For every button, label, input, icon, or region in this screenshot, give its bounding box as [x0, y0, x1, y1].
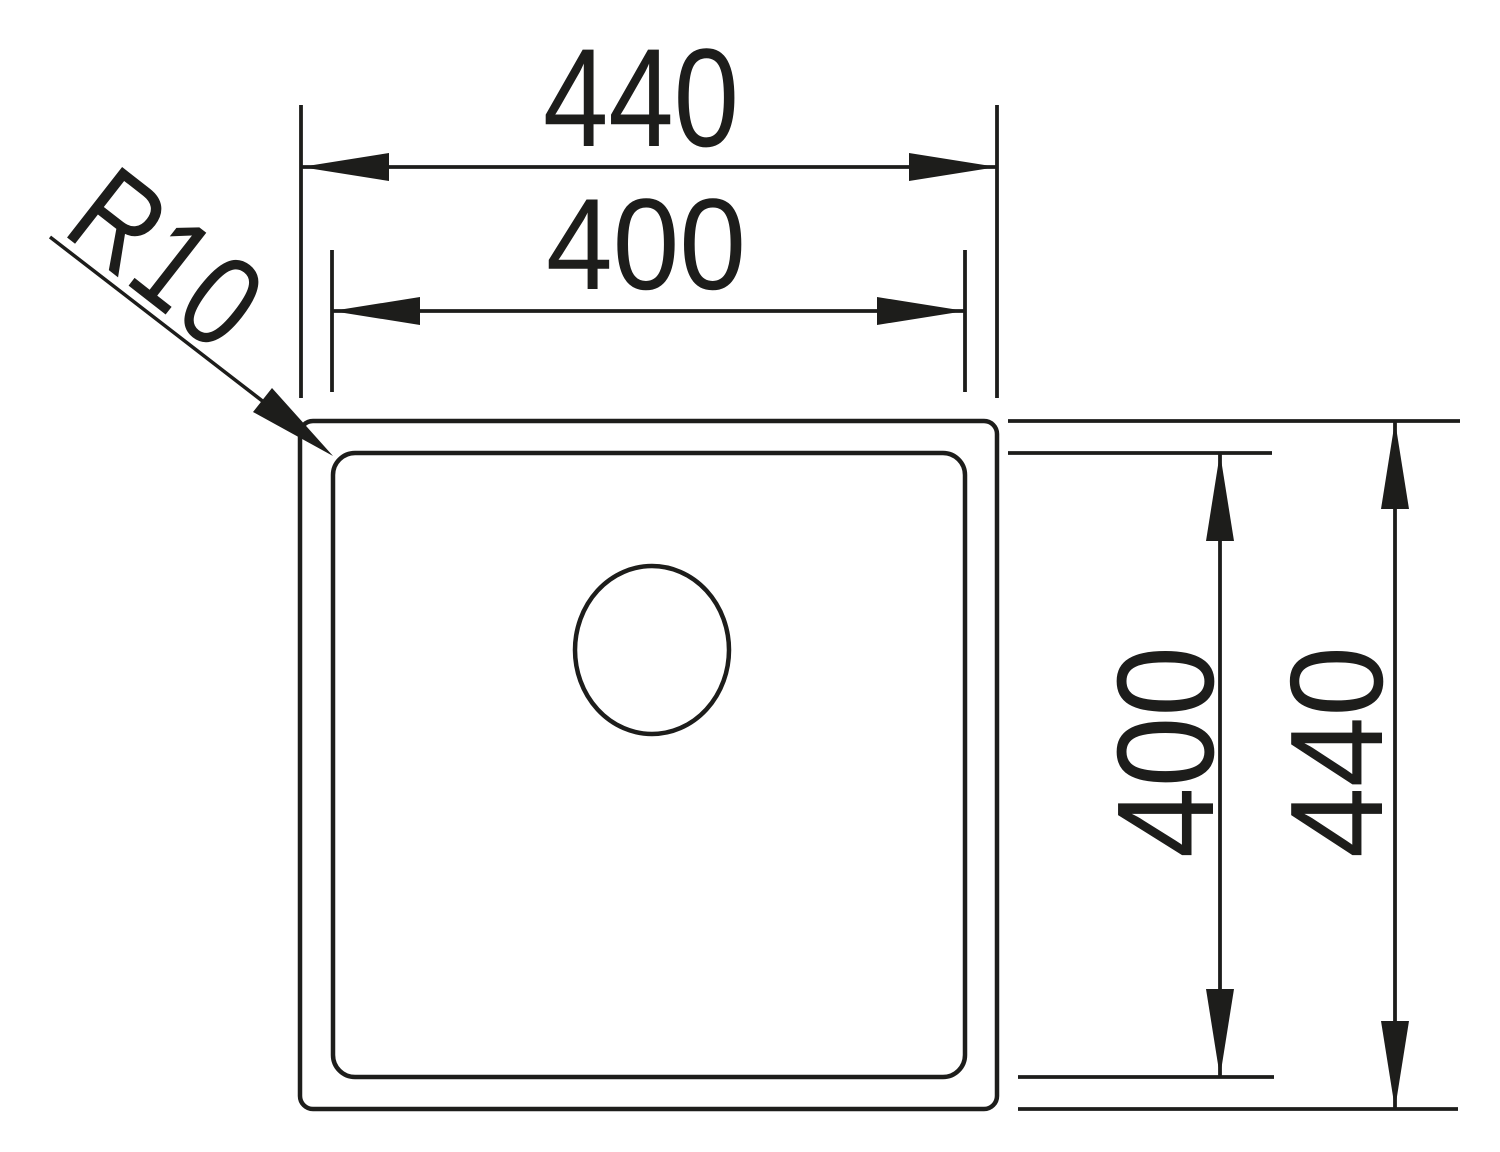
arrowhead-up-icon: [1206, 453, 1234, 541]
drain-hole: [575, 566, 729, 734]
sink-dimension-drawing: 440 400 400 440: [0, 0, 1500, 1152]
arrowhead-left-icon: [301, 153, 389, 181]
dim-height-inner: 400: [1008, 453, 1274, 1077]
sink-bowl-outline: [333, 453, 965, 1077]
sink-outer-outline: [300, 421, 997, 1109]
dim-label-height-inner: 400: [1089, 646, 1243, 858]
arrowhead-left-icon: [332, 297, 420, 325]
arrowhead-down-icon: [1381, 1021, 1409, 1109]
sink-dimension-diagram: 440 400 400 440: [0, 0, 1500, 1152]
arrowhead-right-icon: [909, 153, 997, 181]
arrowhead-down-icon: [1206, 989, 1234, 1077]
radius-callout: R10: [43, 139, 333, 456]
corner-radius-label: R10: [43, 139, 290, 377]
dim-label-height-outer: 440: [1263, 646, 1410, 858]
dim-label-width-outer: 440: [543, 19, 739, 176]
arrowhead-right-icon: [877, 297, 965, 325]
dim-label-width-inner: 400: [546, 171, 746, 317]
sink-body: [300, 421, 997, 1109]
arrowhead-up-icon: [1381, 421, 1409, 509]
dim-width-inner: 400: [332, 171, 965, 392]
